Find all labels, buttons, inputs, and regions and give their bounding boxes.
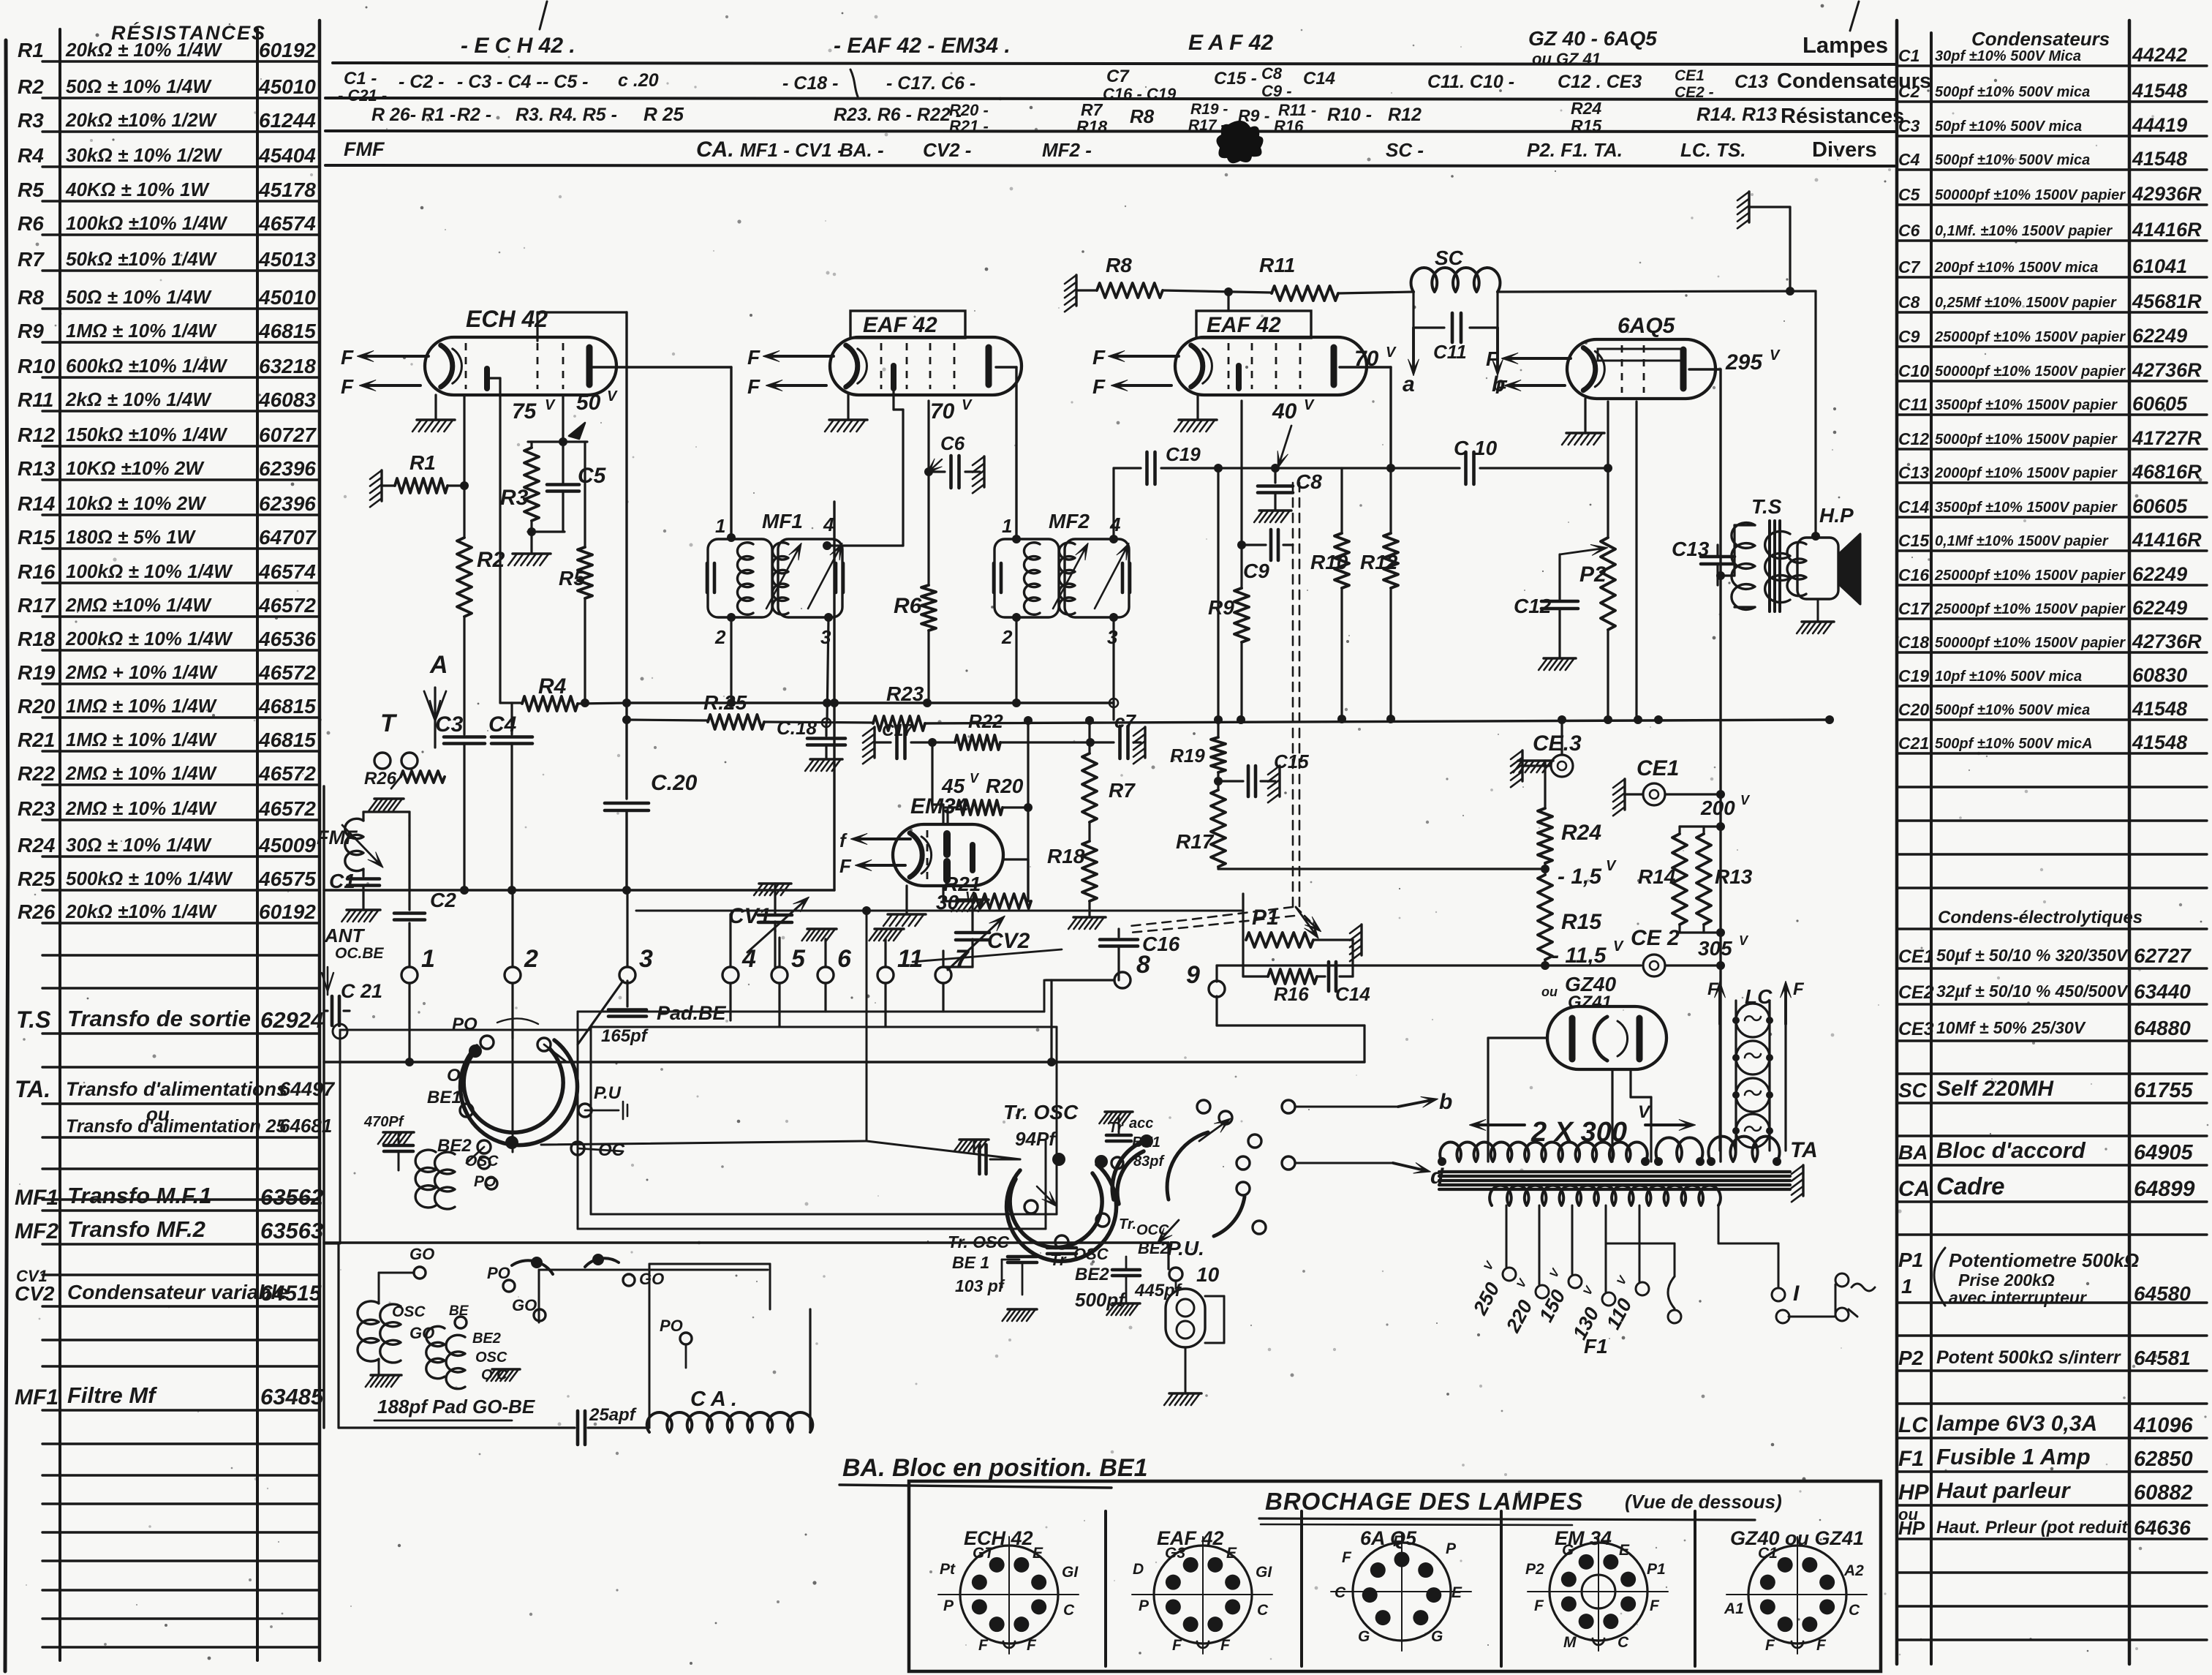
svg-text:TA: TA: [1790, 1138, 1818, 1162]
svg-text:62727: 62727: [2134, 944, 2192, 967]
svg-text:Transfo M.F.1: Transfo M.F.1: [67, 1183, 212, 1208]
svg-text:GT: GT: [973, 1545, 995, 1562]
svg-text:10kΩ ± 10% 2W: 10kΩ ± 10% 2W: [66, 492, 207, 514]
svg-text:50000pf ±10% 1500V papier: 50000pf ±10% 1500V papier: [1935, 187, 2126, 203]
svg-text:Pad.BE: Pad.BE: [657, 1002, 727, 1024]
svg-text:62249: 62249: [2132, 325, 2187, 347]
svg-text:F: F: [1172, 1637, 1182, 1654]
svg-text:62249: 62249: [2132, 597, 2187, 619]
svg-text:F1: F1: [1584, 1335, 1608, 1358]
svg-text:F: F: [1220, 1637, 1231, 1654]
svg-text:V: V: [1613, 938, 1624, 955]
svg-text:- C3 - C4 -: - C3 - C4 -: [457, 72, 543, 92]
svg-text:94Pf: 94Pf: [1015, 1128, 1057, 1150]
svg-text:C10: C10: [1898, 361, 1929, 380]
svg-text:R20: R20: [986, 775, 1024, 797]
svg-text:2MΩ ± 10% 1/4W: 2MΩ ± 10% 1/4W: [65, 797, 218, 819]
svg-text:C17: C17: [1898, 599, 1930, 618]
svg-text:64899: 64899: [2134, 1177, 2195, 1201]
svg-text:500pf ±10% 500V micA: 500pf ±10% 500V micA: [1935, 736, 2093, 752]
svg-text:R8: R8: [1130, 105, 1155, 127]
svg-text:PO: PO: [487, 1264, 510, 1282]
svg-text:61244: 61244: [259, 109, 316, 132]
svg-text:C1: C1: [1898, 46, 1920, 65]
svg-text:R14. R13: R14. R13: [1696, 103, 1777, 125]
svg-text:BA. -: BA. -: [839, 139, 884, 161]
svg-text:46815: 46815: [258, 729, 316, 751]
svg-text:- C18 -: - C18 -: [782, 73, 838, 94]
svg-text:Cadre: Cadre: [1936, 1172, 2005, 1200]
svg-text:46536: 46536: [258, 628, 316, 650]
svg-text:EAF 42: EAF 42: [863, 313, 937, 337]
svg-text:V: V: [1740, 793, 1751, 808]
svg-text:42736R: 42736R: [2132, 631, 2202, 652]
svg-text:R17: R17: [18, 594, 56, 617]
svg-text:V: V: [1386, 345, 1397, 361]
svg-text:100kΩ ± 10% 1/4W: 100kΩ ± 10% 1/4W: [66, 560, 233, 582]
svg-text:F: F: [1793, 979, 1805, 999]
svg-text:F: F: [1816, 1637, 1827, 1654]
svg-text:F: F: [341, 375, 354, 398]
svg-text:MF1: MF1: [15, 1186, 58, 1210]
svg-text:R8: R8: [18, 286, 44, 309]
svg-text:4: 4: [1109, 513, 1121, 535]
svg-text:R4: R4: [18, 144, 44, 167]
svg-text:60727: 60727: [259, 424, 317, 446]
svg-text:60605: 60605: [2132, 495, 2188, 517]
svg-text:Prise 200kΩ: Prise 200kΩ: [1958, 1271, 2055, 1290]
svg-text:C2: C2: [430, 889, 456, 911]
svg-text:2: 2: [714, 626, 726, 648]
svg-text:F: F: [839, 855, 852, 877]
svg-text:C13: C13: [1898, 463, 1929, 482]
svg-text:P.U: P.U: [594, 1083, 622, 1103]
svg-text:GO: GO: [409, 1245, 434, 1263]
svg-text:1MΩ ± 10% 1/4W: 1MΩ ± 10% 1/4W: [66, 320, 218, 342]
svg-text:BA: BA: [1898, 1141, 1928, 1164]
svg-text:46572: 46572: [258, 594, 316, 617]
svg-text:T.S: T.S: [1751, 495, 1782, 518]
svg-text:MF2 -: MF2 -: [1042, 139, 1092, 161]
svg-text:ANT: ANT: [324, 925, 366, 946]
svg-text:0,1Mf. ±10% 1500V papier: 0,1Mf. ±10% 1500V papier: [1935, 223, 2113, 239]
svg-text:C6: C6: [940, 432, 965, 454]
svg-text:40: 40: [1272, 399, 1297, 424]
svg-text:G: G: [1358, 1628, 1370, 1645]
svg-text:45681R: 45681R: [2132, 290, 2202, 312]
svg-text:Potentiometre 500kΩ: Potentiometre 500kΩ: [1949, 1249, 2139, 1271]
svg-text:P1: P1: [1647, 1561, 1666, 1578]
svg-text:C5: C5: [1898, 185, 1921, 204]
svg-text:60192: 60192: [259, 39, 316, 61]
svg-text:1: 1: [421, 945, 435, 973]
svg-text:PO: PO: [452, 1015, 477, 1034]
svg-text:500pf ±10% 500V mica: 500pf ±10% 500V mica: [1935, 702, 2090, 718]
svg-text:41548: 41548: [2132, 148, 2187, 170]
svg-text:Filtre Mf: Filtre Mf: [67, 1382, 157, 1408]
svg-text:C.20: C.20: [651, 771, 698, 795]
svg-text:F: F: [1092, 346, 1106, 369]
svg-text:F: F: [341, 346, 354, 369]
svg-text:150kΩ ±10% 1/4W: 150kΩ ±10% 1/4W: [66, 424, 228, 445]
svg-text:- C2 -: - C2 -: [399, 72, 445, 92]
svg-text:Transfo de sortie: Transfo de sortie: [67, 1006, 251, 1031]
svg-text:R10: R10: [18, 355, 56, 377]
svg-text:C3: C3: [435, 712, 464, 737]
svg-text:V: V: [1739, 933, 1749, 948]
svg-text:25000pf ±10% 1500V papier: 25000pf ±10% 1500V papier: [1934, 601, 2126, 617]
svg-text:305: 305: [1698, 937, 1732, 960]
svg-text:60192: 60192: [259, 900, 316, 923]
svg-text:200: 200: [1700, 797, 1735, 819]
svg-text:avec interrupteur: avec interrupteur: [1949, 1288, 2087, 1307]
svg-text:F: F: [747, 375, 760, 398]
svg-text:46815: 46815: [258, 695, 316, 718]
svg-text:50Ω ± 10% 1/4W: 50Ω ± 10% 1/4W: [66, 286, 212, 308]
svg-text:41416R: 41416R: [2132, 219, 2202, 241]
svg-text:Potent 500kΩ s/interr: Potent 500kΩ s/interr: [1936, 1347, 2121, 1368]
svg-text:R15: R15: [18, 526, 56, 549]
svg-text:R3: R3: [500, 486, 529, 510]
svg-text:Résistances: Résistances: [1781, 105, 1904, 128]
svg-text:BA. Bloc en position. BE1: BA. Bloc en position. BE1: [842, 1454, 1147, 1482]
svg-text:SC: SC: [1898, 1079, 1928, 1102]
svg-text:500pf: 500pf: [1075, 1289, 1126, 1311]
svg-text:63218: 63218: [259, 355, 316, 377]
svg-text:C15 -: C15 -: [1214, 69, 1257, 89]
svg-text:50: 50: [576, 391, 601, 415]
svg-text:BE: BE: [449, 1303, 469, 1319]
svg-text:11: 11: [897, 945, 923, 973]
svg-text:30pf ±10% 500V Mica: 30pf ±10% 500V Mica: [1935, 48, 2081, 64]
svg-text:2MΩ + 10% 1/4W: 2MΩ + 10% 1/4W: [65, 661, 218, 683]
svg-text:C.18: C.18: [777, 717, 817, 739]
svg-text:PO: PO: [660, 1317, 683, 1335]
svg-text:2MΩ ±10% 1/4W: 2MΩ ±10% 1/4W: [65, 594, 212, 616]
svg-text:E A F 42: E A F 42: [1188, 31, 1273, 55]
svg-text:C14: C14: [1335, 983, 1370, 1005]
svg-text:10pf ±10% 500V mica: 10pf ±10% 500V mica: [1935, 669, 2082, 685]
svg-text:46815: 46815: [258, 320, 316, 342]
svg-text:MF2: MF2: [1049, 510, 1090, 532]
svg-text:H.P: H.P: [1819, 504, 1854, 527]
svg-text:64515: 64515: [260, 1281, 322, 1306]
svg-text:20kΩ ±10% 1/2W: 20kΩ ±10% 1/2W: [65, 109, 218, 131]
svg-text:50pf ±10% 500V mica: 50pf ±10% 500V mica: [1935, 118, 2082, 135]
svg-text:R7: R7: [18, 248, 45, 271]
svg-text:41727R: 41727R: [2132, 427, 2202, 449]
svg-text:R3. R4. R5 -: R3. R4. R5 -: [516, 105, 617, 125]
svg-text:R21 -: R21 -: [949, 117, 989, 135]
svg-text:F: F: [747, 346, 760, 369]
svg-text:R16: R16: [18, 560, 56, 583]
svg-text:R1: R1: [409, 451, 436, 474]
svg-text:SC -: SC -: [1386, 139, 1424, 161]
svg-text:R10 -: R10 -: [1327, 105, 1372, 125]
svg-text:F1: F1: [1898, 1447, 1924, 1471]
svg-text:Lampes: Lampes: [1803, 32, 1888, 58]
svg-text:Bloc d'accord: Bloc d'accord: [1936, 1137, 2086, 1163]
svg-text:- EAF 42 - EM34 .: - EAF 42 - EM34 .: [834, 34, 1011, 58]
svg-text:50000pf ±10% 1500V papier: 50000pf ±10% 1500V papier: [1935, 635, 2126, 651]
svg-text:41548: 41548: [2132, 731, 2187, 753]
svg-text:C12 . CE3: C12 . CE3: [1558, 72, 1642, 92]
svg-text:C: C: [1257, 1602, 1269, 1619]
svg-text:30kΩ ± 10% 1/2W: 30kΩ ± 10% 1/2W: [66, 144, 223, 166]
svg-text:d: d: [1430, 1164, 1444, 1189]
svg-text:44242: 44242: [2132, 44, 2187, 66]
svg-text:C 21: C 21: [341, 980, 382, 1002]
svg-text:BE1: BE1: [427, 1088, 461, 1107]
svg-text:Self 220MH: Self 220MH: [1936, 1077, 2054, 1101]
svg-text:R18: R18: [18, 628, 56, 650]
svg-text:M: M: [1563, 1634, 1577, 1651]
svg-text:1: 1: [1002, 515, 1012, 537]
svg-text:A: A: [429, 651, 448, 679]
svg-text:R 25: R 25: [643, 103, 684, 125]
svg-text:62396: 62396: [259, 457, 316, 480]
svg-text:4: 4: [741, 945, 756, 973]
svg-text:R14: R14: [1638, 865, 1676, 888]
svg-text:GI: GI: [1256, 1564, 1272, 1581]
svg-text:2MΩ ± 10% 1/4W: 2MΩ ± 10% 1/4W: [65, 762, 218, 784]
svg-text:C9 -: C9 -: [1261, 82, 1292, 100]
svg-text:50Ω ± 10% 1/4W: 50Ω ± 10% 1/4W: [66, 75, 212, 97]
svg-text:FMF: FMF: [344, 138, 385, 160]
svg-text:P1: P1: [1252, 906, 1279, 930]
svg-text:A2: A2: [1843, 1562, 1864, 1579]
svg-text:BROCHAGE DES LAMPES: BROCHAGE DES LAMPES: [1265, 1488, 1583, 1515]
svg-text:R25: R25: [18, 867, 56, 890]
svg-text:BE 1: BE 1: [952, 1253, 989, 1272]
svg-text:20kΩ ± 10% 1/4W: 20kΩ ± 10% 1/4W: [65, 39, 223, 61]
svg-text:6AQ5: 6AQ5: [1618, 314, 1676, 338]
svg-text:500pf ±10% 500V mica: 500pf ±10% 500V mica: [1935, 152, 2090, 168]
svg-text:CE1: CE1: [1675, 67, 1705, 84]
svg-text:50kΩ ±10% 1/4W: 50kΩ ±10% 1/4W: [66, 248, 218, 270]
svg-text:GI: GI: [1062, 1564, 1079, 1581]
svg-text:46816R: 46816R: [2132, 461, 2202, 483]
svg-text:F: F: [1765, 1637, 1775, 1654]
svg-text:46574: 46574: [258, 560, 316, 583]
svg-text:E: E: [1226, 1545, 1237, 1562]
svg-text:ou: ou: [1541, 985, 1558, 999]
svg-text:60882: 60882: [2134, 1481, 2193, 1505]
svg-text:64707: 64707: [259, 526, 317, 549]
svg-text:BE2: BE2: [1138, 1239, 1170, 1257]
svg-text:103 pf: 103 pf: [955, 1276, 1005, 1295]
svg-text:C1: C1: [329, 870, 355, 892]
svg-text:C7: C7: [1106, 67, 1130, 86]
svg-text:R5: R5: [559, 567, 585, 590]
svg-text:3500pf ±10% 1500V papier: 3500pf ±10% 1500V papier: [1935, 500, 2118, 516]
svg-text:6A Q5: 6A Q5: [1360, 1527, 1417, 1549]
svg-text:LC. TS.: LC. TS.: [1680, 139, 1746, 161]
svg-text:9: 9: [1186, 961, 1200, 989]
svg-text:C18: C18: [1898, 633, 1929, 652]
svg-text:Tr. OSC: Tr. OSC: [948, 1232, 1009, 1251]
svg-text:CE2 -: CE2 -: [1675, 84, 1714, 101]
svg-text:HP: HP: [1898, 1480, 1930, 1505]
svg-text:Tr. OSC: Tr. OSC: [1003, 1101, 1079, 1123]
svg-text:C5: C5: [578, 464, 607, 488]
svg-text:R26: R26: [364, 769, 397, 788]
svg-text:70: 70: [1354, 347, 1379, 371]
svg-text:E: E: [1619, 1542, 1630, 1559]
svg-text:100kΩ ±10% 1/4W: 100kΩ ±10% 1/4W: [66, 212, 228, 234]
svg-text:GO: GO: [639, 1270, 664, 1288]
svg-text:C: C: [1849, 1602, 1860, 1619]
svg-text:R2: R2: [18, 75, 44, 98]
svg-text:OC.BE: OC.BE: [335, 945, 385, 962]
svg-text:45404: 45404: [258, 144, 316, 167]
svg-text:2: 2: [524, 945, 538, 973]
svg-text:41096: 41096: [2133, 1414, 2194, 1437]
svg-text:C12: C12: [1514, 595, 1552, 617]
svg-text:63440: 63440: [2134, 980, 2191, 1003]
svg-text:32µf ± 50/10 % 450/500V: 32µf ± 50/10 % 450/500V: [1936, 982, 2129, 1001]
svg-text:CE2: CE2: [1898, 982, 1934, 1003]
svg-text:CV2 -: CV2 -: [923, 139, 971, 161]
svg-text:64581: 64581: [2134, 1347, 2191, 1369]
svg-text:46572: 46572: [258, 762, 316, 785]
svg-text:OSC: OSC: [465, 1153, 499, 1170]
svg-text:TA.: TA.: [15, 1076, 50, 1102]
svg-text:10: 10: [1196, 1263, 1220, 1286]
svg-text:GO: GO: [512, 1296, 537, 1314]
svg-text:1MΩ ± 10% 1/4W: 1MΩ ± 10% 1/4W: [66, 729, 218, 750]
svg-text:C1: C1: [1758, 1545, 1778, 1562]
svg-text:R.25: R.25: [703, 691, 747, 714]
svg-text:C1 -: C1 -: [344, 69, 377, 89]
svg-text:P: P: [943, 1597, 954, 1614]
svg-text:2000pf ±10% 1500V papier: 2000pf ±10% 1500V papier: [1934, 465, 2118, 481]
svg-text:F: F: [1342, 1549, 1352, 1566]
svg-text:Transfo d'alimentations: Transfo d'alimentations: [66, 1078, 287, 1100]
svg-text:64880: 64880: [2134, 1017, 2191, 1039]
svg-text:CV2: CV2: [15, 1282, 55, 1305]
svg-text:lampe 6V3 0,3A: lampe 6V3 0,3A: [1936, 1412, 2097, 1436]
svg-text:Condensateurs: Condensateurs: [1777, 69, 1931, 93]
svg-text:C11: C11: [1898, 395, 1928, 414]
svg-text:c7: c7: [1114, 710, 1136, 732]
svg-text:R21: R21: [18, 729, 55, 751]
svg-text:MF1: MF1: [762, 510, 803, 532]
svg-text:BE2: BE2: [472, 1330, 501, 1347]
svg-text:R18: R18: [1076, 117, 1107, 136]
svg-text:45010: 45010: [258, 75, 316, 98]
svg-text:b: b: [1439, 1090, 1452, 1114]
svg-text:R3: R3: [18, 109, 44, 132]
svg-text:EAF 42: EAF 42: [1207, 313, 1281, 337]
svg-text:41548: 41548: [2132, 698, 2187, 720]
svg-text:MF2: MF2: [15, 1219, 58, 1243]
svg-text:OSC: OSC: [1073, 1245, 1109, 1263]
svg-text:F: F: [1393, 1533, 1403, 1550]
svg-text:R9: R9: [18, 320, 44, 342]
svg-text:44419: 44419: [2132, 114, 2187, 136]
svg-text:25000pf ±10% 1500V papier: 25000pf ±10% 1500V papier: [1934, 329, 2126, 345]
svg-text:V: V: [1606, 858, 1617, 874]
svg-text:60605: 60605: [2132, 393, 2188, 415]
svg-text:C8: C8: [1898, 293, 1920, 312]
svg-text:P2: P2: [1898, 1347, 1924, 1369]
svg-text:C13: C13: [1735, 72, 1768, 92]
svg-text:3: 3: [639, 945, 653, 973]
svg-text:V: V: [1638, 1102, 1651, 1122]
svg-text:Haut. Prleur (pot reduit: Haut. Prleur (pot reduit: [1936, 1518, 2128, 1537]
svg-text:Divers: Divers: [1812, 138, 1877, 162]
svg-text:180Ω ± 5% 1W: 180Ω ± 5% 1W: [66, 526, 197, 548]
svg-text:42736R: 42736R: [2132, 359, 2202, 381]
svg-text:R20: R20: [18, 695, 56, 718]
svg-text:P: P: [1139, 1597, 1150, 1614]
svg-text:50µf ± 50/10 % 320/350V: 50µf ± 50/10 % 320/350V: [1936, 946, 2129, 965]
svg-text:- C5 -: - C5 -: [543, 72, 589, 92]
svg-text:Condens-électrolytiques: Condens-électrolytiques: [1938, 908, 2143, 927]
svg-text:25apf: 25apf: [589, 1405, 637, 1425]
svg-text:GZ 40 - 6AQ5: GZ 40 - 6AQ5: [1528, 27, 1657, 50]
svg-text:R13: R13: [18, 457, 56, 480]
svg-text:R19 -: R19 -: [1190, 101, 1228, 118]
svg-text:C11. C10 -: C11. C10 -: [1427, 72, 1514, 92]
svg-text:F: F: [1534, 1597, 1544, 1614]
svg-text:R8: R8: [1106, 254, 1132, 276]
svg-text:c .20: c .20: [618, 70, 659, 91]
svg-text:3500pf ±10% 1500V papier: 3500pf ±10% 1500V papier: [1935, 397, 2118, 413]
svg-text:V: V: [1304, 397, 1315, 413]
svg-text:C16 - C19: C16 - C19: [1103, 85, 1177, 103]
svg-text:(Vue de dessous): (Vue de dessous): [1625, 1491, 1782, 1513]
svg-text:C9: C9: [1898, 327, 1920, 346]
svg-text:CE3: CE3: [1898, 1019, 1934, 1039]
svg-text:5: 5: [791, 945, 806, 973]
svg-text:45009: 45009: [258, 834, 316, 857]
svg-text:0,25Mf ±10% 1500V papier: 0,25Mf ±10% 1500V papier: [1935, 295, 2117, 311]
svg-text:C19: C19: [1898, 666, 1929, 685]
svg-text:Pt: Pt: [940, 1561, 956, 1578]
svg-text:R6: R6: [18, 212, 44, 235]
svg-text:41548: 41548: [2132, 80, 2187, 102]
svg-text:C11: C11: [1433, 341, 1467, 363]
svg-text:30Ω ± 10% 1/4W: 30Ω ± 10% 1/4W: [66, 834, 212, 856]
svg-text:R5: R5: [18, 178, 44, 201]
svg-text:62924: 62924: [260, 1007, 323, 1033]
svg-text:4: 4: [823, 513, 834, 535]
svg-text:I: I: [1793, 1281, 1800, 1306]
svg-text:2kΩ ± 10% 1/4W: 2kΩ ± 10% 1/4W: [65, 388, 212, 410]
svg-text:LC: LC: [1898, 1413, 1928, 1437]
svg-text:R17: R17: [1176, 830, 1215, 853]
svg-text:500kΩ ± 10% 1/4W: 500kΩ ± 10% 1/4W: [66, 867, 233, 889]
svg-text:42936R: 42936R: [2132, 183, 2202, 205]
svg-text:R21: R21: [943, 873, 981, 895]
svg-text:62396: 62396: [259, 492, 316, 515]
svg-text:R19: R19: [18, 661, 56, 684]
svg-text:R22: R22: [968, 710, 1003, 732]
svg-text:C14: C14: [1303, 69, 1335, 89]
svg-text:63485: 63485: [260, 1384, 324, 1409]
svg-text:R22: R22: [18, 762, 56, 785]
svg-text:V: V: [545, 397, 556, 413]
svg-text:C4: C4: [1898, 150, 1920, 169]
svg-text:MF1 - CV1 -: MF1 - CV1 -: [740, 139, 844, 161]
svg-text:- 1,5: - 1,5: [1558, 865, 1602, 889]
svg-text:C A .: C A .: [690, 1388, 737, 1411]
svg-text:Haut parleur: Haut parleur: [1936, 1478, 2072, 1503]
svg-text:60830: 60830: [2132, 664, 2187, 686]
svg-text:C16: C16: [1898, 565, 1929, 584]
